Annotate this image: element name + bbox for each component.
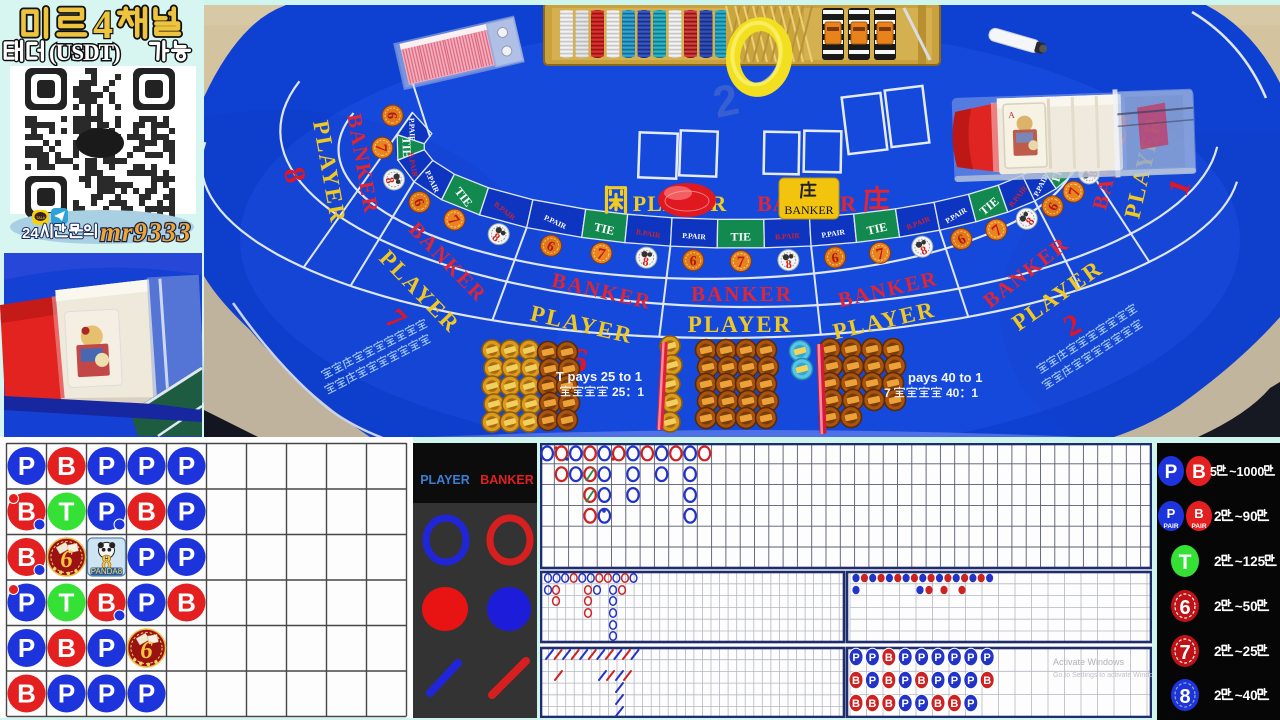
svg-text:P: P xyxy=(967,675,974,687)
svg-text:B: B xyxy=(17,497,36,527)
svg-text:6: 6 xyxy=(689,254,697,269)
svg-text:P: P xyxy=(1165,462,1178,483)
svg-text:24: 24 xyxy=(22,225,39,242)
svg-text:P: P xyxy=(98,679,115,709)
svg-text:2: 2 xyxy=(1214,644,1222,659)
svg-text:B: B xyxy=(177,588,196,618)
svg-text:PAIR: PAIR xyxy=(1191,523,1206,530)
svg-text:PLAYER: PLAYER xyxy=(688,312,792,337)
svg-text:8: 8 xyxy=(1179,686,1190,708)
svg-text:B: B xyxy=(17,542,36,572)
svg-text:P: P xyxy=(178,497,195,527)
svg-text:PLAYER: PLAYER xyxy=(420,473,470,487)
svg-text:~90: ~90 xyxy=(1235,509,1258,524)
svg-text:BANKER: BANKER xyxy=(784,203,833,217)
svg-text:~50: ~50 xyxy=(1235,599,1258,614)
svg-text:P: P xyxy=(138,542,155,572)
svg-text:B: B xyxy=(868,698,876,710)
svg-text:PANDA8: PANDA8 xyxy=(91,567,123,576)
svg-text:~1000: ~1000 xyxy=(1229,465,1264,479)
svg-text:P: P xyxy=(98,633,115,663)
svg-text:Activate Windows: Activate Windows xyxy=(1053,657,1125,667)
svg-text:P: P xyxy=(869,652,876,664)
svg-text:P: P xyxy=(951,675,958,687)
svg-text:PAIR: PAIR xyxy=(1163,523,1178,530)
svg-text:P: P xyxy=(918,652,925,664)
svg-text:B: B xyxy=(852,675,860,687)
svg-text:P: P xyxy=(869,675,876,687)
svg-text:P: P xyxy=(98,497,115,527)
svg-text:P: P xyxy=(918,698,925,710)
svg-text:2: 2 xyxy=(1214,599,1222,614)
svg-text:B: B xyxy=(1192,462,1206,483)
svg-text:B: B xyxy=(137,497,156,527)
svg-text:P: P xyxy=(138,588,155,618)
svg-text:2: 2 xyxy=(1214,554,1222,569)
svg-text:P.PAIR: P.PAIR xyxy=(682,231,707,242)
svg-text:6: 6 xyxy=(383,112,398,120)
svg-text:~125: ~125 xyxy=(1235,554,1266,569)
svg-text:P: P xyxy=(98,451,115,481)
svg-text:B: B xyxy=(983,675,991,687)
svg-text:P: P xyxy=(138,679,155,709)
svg-text:B: B xyxy=(885,652,893,664)
svg-text:6: 6 xyxy=(140,637,153,664)
svg-text:B.PAIR: B.PAIR xyxy=(775,231,801,242)
svg-text:7: 7 xyxy=(372,144,389,153)
svg-text:P: P xyxy=(138,451,155,481)
svg-text:mr9333: mr9333 xyxy=(100,217,192,247)
svg-text:P: P xyxy=(902,652,909,664)
svg-text:P: P xyxy=(902,675,909,687)
svg-text:6: 6 xyxy=(60,546,73,573)
svg-text:P: P xyxy=(18,588,35,618)
svg-text:T: T xyxy=(1179,551,1192,574)
svg-text:B: B xyxy=(950,698,958,710)
svg-text:B: B xyxy=(885,698,893,710)
svg-text:~25: ~25 xyxy=(1235,644,1258,659)
svg-text:7: 7 xyxy=(737,254,745,271)
svg-text:pays 40 to 1: pays 40 to 1 xyxy=(908,370,982,385)
svg-text:P: P xyxy=(58,679,75,709)
svg-text:2: 2 xyxy=(1214,688,1222,703)
svg-text:P: P xyxy=(852,652,859,664)
svg-text:P: P xyxy=(1167,506,1176,521)
svg-text:T: T xyxy=(59,588,75,618)
svg-text:T pays 25 to 1: T pays 25 to 1 xyxy=(556,369,642,384)
svg-text:P: P xyxy=(967,652,974,664)
svg-text:B: B xyxy=(852,698,860,710)
svg-text:7: 7 xyxy=(1179,642,1190,664)
svg-text:B: B xyxy=(97,588,116,618)
svg-text:T: T xyxy=(59,497,75,527)
svg-text:P: P xyxy=(984,652,991,664)
svg-text:P: P xyxy=(18,633,35,663)
svg-text:BANKER: BANKER xyxy=(480,473,533,487)
svg-text:BANKER: BANKER xyxy=(691,282,793,306)
svg-text:TIE: TIE xyxy=(730,230,751,244)
svg-text:6: 6 xyxy=(1179,597,1190,619)
svg-text:B: B xyxy=(885,675,893,687)
svg-text:7: 7 xyxy=(884,386,891,400)
svg-text:(USDT): (USDT) xyxy=(49,40,120,65)
svg-text:B: B xyxy=(1194,506,1203,521)
svg-text:P: P xyxy=(934,675,941,687)
svg-text:P: P xyxy=(178,451,195,481)
svg-text:25：1: 25：1 xyxy=(612,385,644,399)
svg-text:Go to Settings to activate Win: Go to Settings to activate Windows. xyxy=(1053,672,1152,679)
svg-text:TALK: TALK xyxy=(36,215,46,220)
svg-text:B: B xyxy=(17,679,36,709)
svg-text:40：1: 40：1 xyxy=(946,386,978,400)
svg-text:P: P xyxy=(178,542,195,572)
svg-text:B: B xyxy=(57,633,76,663)
svg-text:P: P xyxy=(934,652,941,664)
svg-text:P: P xyxy=(902,698,909,710)
svg-text:P: P xyxy=(967,698,974,710)
svg-text:B: B xyxy=(934,698,942,710)
svg-text:A: A xyxy=(1008,110,1015,120)
svg-text:B: B xyxy=(918,675,926,687)
svg-text:2: 2 xyxy=(1214,509,1222,524)
svg-text:5: 5 xyxy=(1210,465,1217,479)
svg-text:8: 8 xyxy=(785,257,792,271)
svg-text:~40: ~40 xyxy=(1235,688,1258,703)
svg-text:B: B xyxy=(57,451,76,481)
svg-text:P: P xyxy=(18,451,35,481)
svg-text:P: P xyxy=(951,652,958,664)
